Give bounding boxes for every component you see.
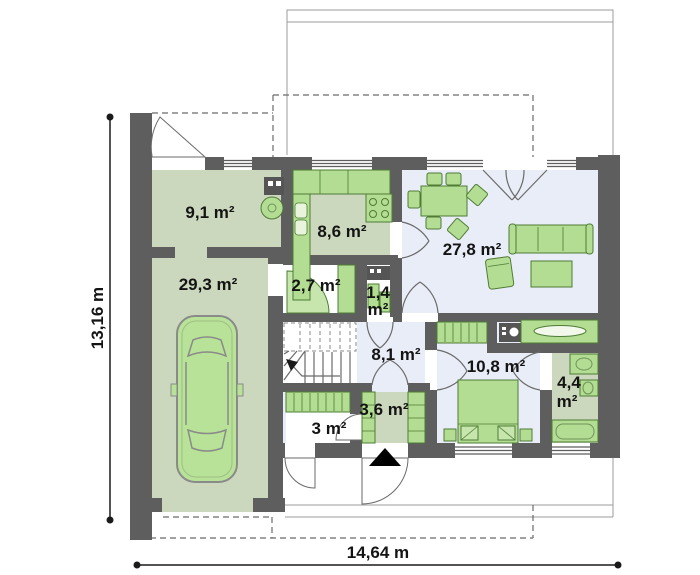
label-bathroom-value: 4,4 <box>557 373 581 392</box>
dimension-height: 13,16 m <box>88 114 114 524</box>
garage-hall-opening <box>268 264 283 296</box>
floor-plan: 9,1 m² 29,3 m² 8,6 m² 2,7 m² 1,4 m² 27,8… <box>0 0 700 575</box>
utility-exterior-door <box>151 117 205 157</box>
utility-window <box>224 157 252 170</box>
stove-icon <box>366 194 392 222</box>
armchair <box>485 256 514 289</box>
height-dimension-label: 13,16 m <box>88 287 107 349</box>
entrance-marker-icon <box>369 448 401 466</box>
laundry-nook <box>499 320 598 343</box>
living-window-right <box>547 157 576 170</box>
label-wardrobe: 3,6 m² <box>359 400 408 419</box>
garage-door-sill <box>162 498 253 512</box>
sofa <box>509 224 593 254</box>
label-garage: 29,3 m² <box>179 275 238 294</box>
bedroom-wardrobe <box>437 322 487 343</box>
width-dimension-label: 14,64 m <box>347 543 409 562</box>
label-kitchen: 8,6 m² <box>317 222 366 241</box>
label-living: 27,8 m² <box>443 240 502 259</box>
label-hall: 2,7 m² <box>291 276 340 295</box>
label-hallway: 8,1 m² <box>371 345 420 364</box>
bedroom-window <box>455 443 512 458</box>
car-icon <box>171 316 243 482</box>
dimension-width: 14,64 m <box>134 543 622 569</box>
bathroom-window <box>552 443 590 458</box>
washbasin <box>570 354 598 374</box>
coffee-table <box>531 261 572 287</box>
living-window-left <box>427 157 483 170</box>
nightstand <box>444 429 456 441</box>
label-bathroom-unit: m² <box>557 392 578 411</box>
nightstand <box>520 429 532 441</box>
closet-wardrobe <box>286 392 350 412</box>
label-wc-unit: m² <box>368 300 389 319</box>
kitchen-window <box>312 157 372 170</box>
counter-sink <box>534 326 586 337</box>
label-bedroom: 10,8 m² <box>467 357 526 376</box>
label-utility: 9,1 m² <box>185 203 234 222</box>
label-closet: 3 m² <box>312 419 347 438</box>
side-exterior-door <box>285 458 315 488</box>
